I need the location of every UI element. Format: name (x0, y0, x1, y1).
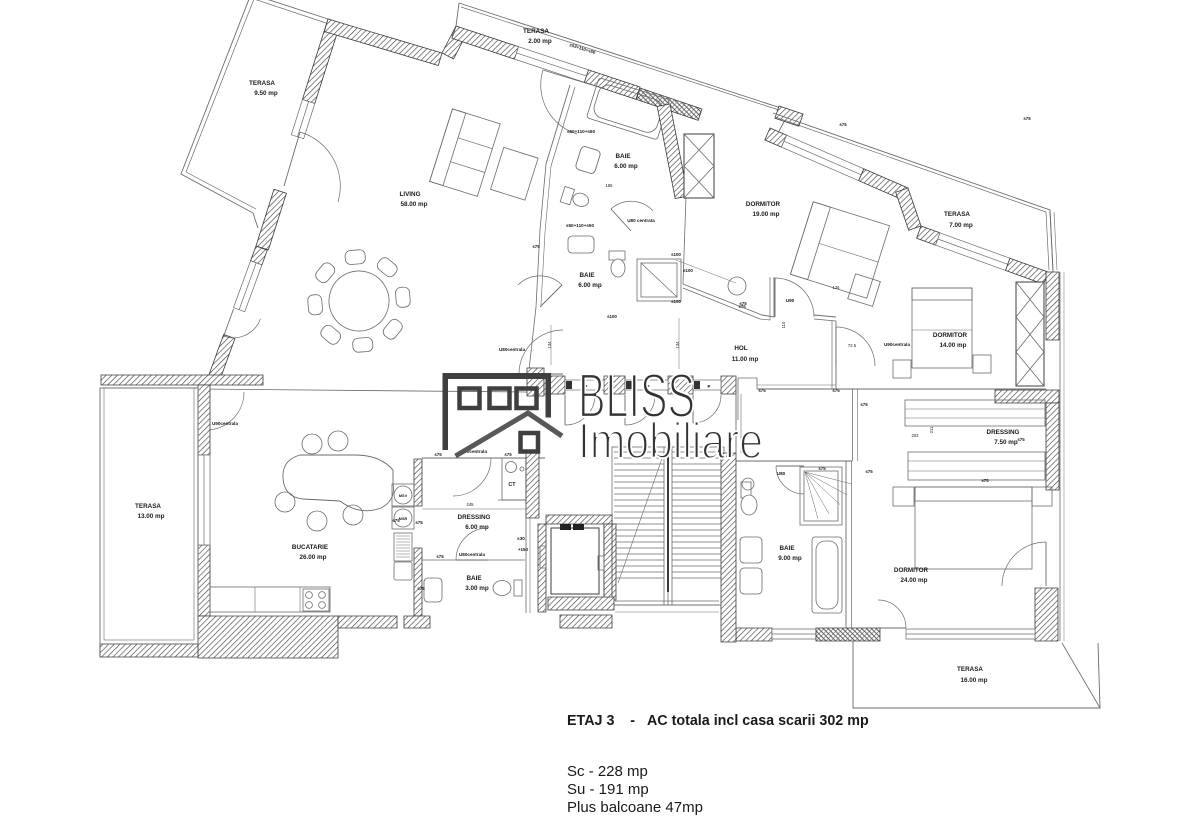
svg-text:s100: s100 (607, 314, 617, 319)
svg-text:s75: s75 (417, 586, 425, 591)
svg-text:185: 185 (606, 183, 614, 188)
svg-text:6.00 mp: 6.00 mp (614, 163, 638, 170)
svg-text:s75: s75 (818, 466, 826, 471)
svg-text:s75: s75 (860, 402, 868, 407)
svg-text:110: 110 (781, 321, 786, 328)
svg-text:7.50 mp: 7.50 mp (994, 439, 1018, 446)
svg-text:Imobiliare: Imobiliare (578, 413, 763, 469)
svg-text:s100: s100 (683, 268, 693, 273)
svg-text:s100: s100 (671, 299, 681, 304)
svg-text:19.00 mp: 19.00 mp (753, 211, 780, 218)
svg-text:LIVING: LIVING (400, 191, 421, 198)
svg-text:s75: s75 (832, 388, 840, 393)
svg-text:TERASA: TERASA (957, 666, 983, 673)
svg-text:U80centrala: U80centrala (499, 347, 525, 352)
svg-text:s53+110+s50: s53+110+s50 (569, 42, 597, 55)
svg-text:U80: U80 (777, 471, 786, 476)
svg-text:BAIE: BAIE (579, 272, 594, 279)
svg-text:s75: s75 (436, 554, 444, 559)
svg-text:s75: s75 (739, 301, 747, 306)
svg-text:DORMITOR: DORMITOR (746, 201, 781, 208)
svg-text:203: 203 (912, 433, 920, 438)
svg-text:14.00 mp: 14.00 mp (940, 342, 967, 349)
svg-text:58.00 mp: 58.00 mp (401, 201, 428, 208)
svg-text:BAIE: BAIE (615, 153, 630, 160)
svg-text:MSV: MSV (399, 494, 408, 498)
svg-text:s50+110+s50: s50+110+s50 (566, 223, 595, 228)
svg-text:211: 211 (929, 426, 934, 433)
svg-text:26.00 mp: 26.00 mp (300, 554, 327, 561)
svg-text:+150: +150 (518, 547, 529, 552)
svg-text:BAIE: BAIE (466, 575, 481, 582)
svg-text:Su - 191 mp: Su - 191 mp (567, 781, 649, 798)
svg-text:DORMITOR: DORMITOR (894, 567, 929, 574)
svg-text:s75: s75 (504, 452, 512, 457)
svg-text:126: 126 (833, 285, 841, 290)
svg-text:CT: CT (508, 482, 516, 488)
svg-text:TERASA: TERASA (135, 503, 161, 510)
svg-text:DRESSING: DRESSING (458, 514, 491, 521)
svg-text:U90centrala: U90centrala (212, 421, 238, 426)
svg-text:24.00 mp: 24.00 mp (901, 577, 928, 584)
svg-text:s75: s75 (758, 388, 766, 393)
svg-text:9.00 mp: 9.00 mp (778, 555, 802, 562)
svg-text:11.00 mp: 11.00 mp (732, 356, 759, 363)
svg-text:s75: s75 (1017, 437, 1025, 442)
svg-text:ETAJ 3 - AC totala incl c: ETAJ 3 - AC totala incl casa scarii 302 … (567, 713, 869, 729)
svg-text:U90: U90 (786, 298, 795, 303)
svg-text:DORMITOR: DORMITOR (933, 332, 968, 339)
svg-text:U80 centrata: U80 centrata (627, 218, 655, 223)
svg-text:BAIE: BAIE (779, 545, 794, 552)
svg-text:s100: s100 (671, 252, 681, 257)
svg-text:s50+110+s50: s50+110+s50 (567, 129, 596, 134)
svg-text:Plus balcoane 47mp: Plus balcoane 47mp (567, 799, 703, 816)
svg-text:P: P (707, 384, 710, 389)
svg-text:7.00 mp: 7.00 mp (949, 222, 973, 229)
svg-text:s75: s75 (415, 520, 423, 525)
svg-text:s30: s30 (517, 536, 525, 541)
svg-text:MSR: MSR (399, 517, 408, 521)
svg-text:s75: s75 (865, 469, 873, 474)
svg-text:2.00 mp: 2.00 mp (528, 38, 552, 45)
svg-text:13.00 mp: 13.00 mp (138, 513, 165, 520)
svg-text:HOL: HOL (734, 345, 747, 352)
svg-text:s75: s75 (434, 452, 442, 457)
svg-text:TERASA: TERASA (944, 211, 970, 218)
svg-text:s75: s75 (532, 244, 540, 249)
svg-text:DRESSING: DRESSING (987, 429, 1020, 436)
svg-text:245: 245 (467, 502, 475, 507)
svg-text:U80centrala: U80centrala (459, 552, 485, 557)
svg-text:TERASA: TERASA (523, 28, 549, 35)
svg-text:s75: s75 (981, 478, 989, 483)
svg-text:Sc - 228 mp: Sc - 228 mp (567, 763, 648, 780)
svg-text:TERASA: TERASA (249, 80, 275, 87)
svg-text:16.00 mp: 16.00 mp (961, 677, 988, 684)
svg-text:s75: s75 (839, 122, 847, 127)
svg-text:BUCATARIE: BUCATARIE (292, 544, 328, 551)
svg-text:U90centrala: U90centrala (884, 342, 910, 347)
svg-text:s75: s75 (1023, 116, 1031, 121)
svg-text:6.00 mp: 6.00 mp (578, 282, 602, 289)
svg-text:s75: s75 (392, 518, 400, 523)
svg-text:72.5: 72.5 (848, 343, 857, 348)
svg-text:9.50 mp: 9.50 mp (254, 90, 278, 97)
svg-text:3.00 mp: 3.00 mp (465, 585, 489, 592)
